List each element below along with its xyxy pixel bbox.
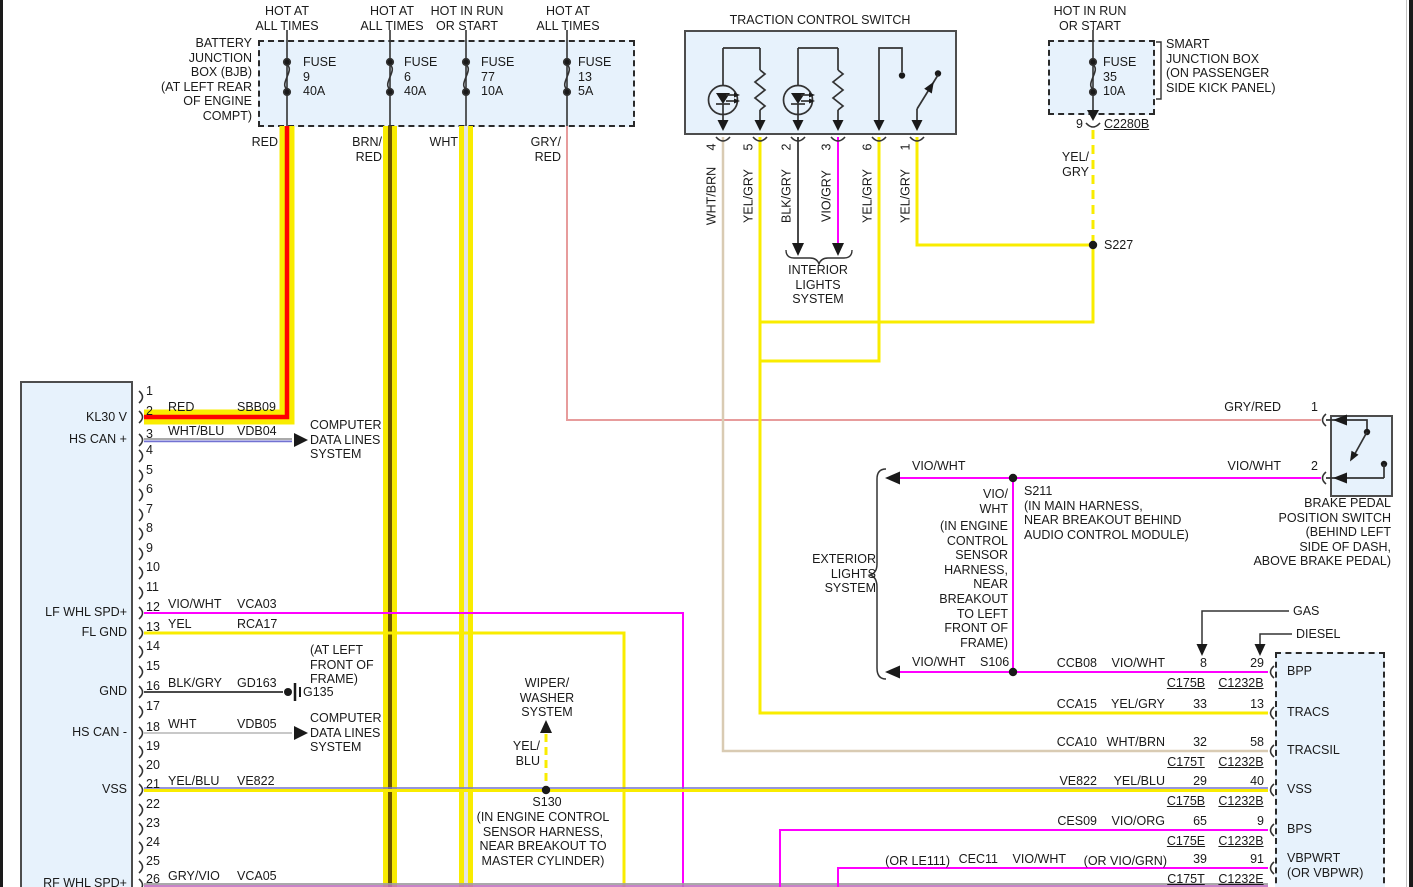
row4-circuit: VE822 xyxy=(1059,774,1097,789)
left-connector-pin-number: 26 xyxy=(146,872,160,887)
conn-c2280b: C2280B xyxy=(1104,117,1149,132)
left-connector-pin-number: 4 xyxy=(146,443,153,458)
row5-circuit: CES09 xyxy=(1057,814,1097,829)
wire-yel-blu-s130-branch xyxy=(540,720,552,786)
sjb-pin-9: 9 xyxy=(1076,117,1083,132)
brake-pedal-position-switch-box xyxy=(1330,415,1393,497)
pin-bracket-left xyxy=(139,823,143,835)
pin-bracket-left xyxy=(139,804,143,816)
bpp-title: BRAKE PEDAL POSITION SWITCH (BEHIND LEFT… xyxy=(1253,496,1391,569)
w12-color: VIO/WHT xyxy=(168,597,221,612)
row4-conn-gas: C175B xyxy=(1167,794,1205,809)
row6-alt-circuit: (OR LE111) xyxy=(885,854,950,869)
pin-bracket-c2280b xyxy=(1086,123,1100,127)
row5-diesel-pin: 9 xyxy=(1257,814,1264,829)
row6-diesel-pin: 91 xyxy=(1250,852,1264,867)
row1-conn-gas: C175B xyxy=(1167,676,1205,691)
feed-label-4: HOT AT ALL TIMES xyxy=(536,4,599,33)
row6-color: VIO/WHT xyxy=(1013,852,1066,867)
row3-circuit: CCA10 xyxy=(1057,735,1097,750)
computer-data-lines-1: COMPUTER DATA LINES SYSTEM xyxy=(310,418,382,462)
row4-color: YEL/BLU xyxy=(1114,774,1165,789)
pin-bracket-tcs xyxy=(831,137,845,141)
left-connector-pin-number: 22 xyxy=(146,797,160,812)
fuse-9-label: FUSE 9 40A xyxy=(303,55,336,99)
row2-diesel-pin: 13 xyxy=(1250,697,1264,712)
pin-bracket-left xyxy=(139,567,143,579)
pin-bracket-left xyxy=(139,450,143,462)
row4-diesel-pin: 40 xyxy=(1250,774,1264,789)
pin-bracket-tcs xyxy=(716,137,730,141)
row6-alt-color: (OR VIO/GRN) xyxy=(1084,854,1167,869)
wire-gry-red xyxy=(567,126,1321,420)
tcs-wire-4: WHT/BRN xyxy=(705,167,720,225)
left-connector-pin-number: 24 xyxy=(146,835,160,850)
left-connector-pin-number: 9 xyxy=(146,541,153,556)
pcm-pin-tracs: TRACS xyxy=(1287,705,1329,720)
computer-data-lines-2: COMPUTER DATA LINES SYSTEM xyxy=(310,711,382,755)
wire-yelblu-label: YEL/ BLU xyxy=(513,739,540,768)
wiper-washer-system: WIPER/ WASHER SYSTEM xyxy=(520,676,574,720)
pin-bracket-left xyxy=(139,470,143,482)
left-connector-pin-number: 2 xyxy=(146,404,153,419)
w13-circuit: RCA17 xyxy=(237,617,277,632)
wire-yel-blu-ve822 xyxy=(144,788,1268,791)
pin-lfwhlspd: LF WHL SPD+ xyxy=(45,605,127,620)
left-connector-pin-number: 21 xyxy=(146,777,160,792)
pcm-pin-bps: BPS xyxy=(1287,822,1312,837)
gas-pointer xyxy=(1197,611,1290,656)
wire-brnred-label: BRN/ RED xyxy=(352,135,382,164)
row2-color: YEL/GRY xyxy=(1111,697,1165,712)
traction-control-switch-box xyxy=(684,30,957,135)
row3-conn-gas: C175T xyxy=(1167,755,1205,770)
tcs-wire-6: YEL/GRY xyxy=(861,169,876,223)
tcs-pin-1: 1 xyxy=(899,144,914,151)
w2-color: RED xyxy=(168,400,194,415)
pin-flgnd: FL GND xyxy=(82,625,127,640)
row5-conn-gas: C175E xyxy=(1167,834,1205,849)
pin-bracket-left xyxy=(139,627,143,639)
pin-bracket-left xyxy=(139,784,143,796)
tcs-wire-5: YEL/GRY xyxy=(742,169,757,223)
row5-conn-diesel: C1232B xyxy=(1218,834,1263,849)
row3-color: WHT/BRN xyxy=(1107,735,1165,750)
row6-conn-diesel: C1232E xyxy=(1218,872,1263,887)
pin-bracket-bpp xyxy=(1323,414,1327,426)
w18-color: WHT xyxy=(168,717,196,732)
left-connector-pin-number: 3 xyxy=(146,427,153,442)
tcs-pin-4: 4 xyxy=(705,144,720,151)
tcs-wire-2: BLK/GRY xyxy=(780,169,795,223)
wire-viowht-upper: VIO/WHT xyxy=(912,459,965,474)
pin-bracket-pcm xyxy=(1271,824,1275,836)
pin-bracket-left xyxy=(139,509,143,521)
interior-lights-underbrace xyxy=(786,250,852,264)
pin-bracket-left xyxy=(139,686,143,698)
pin-bracket-left xyxy=(139,391,143,403)
pcm-pin-tracsil: TRACSIL xyxy=(1287,743,1340,758)
tcs-pin-3: 3 xyxy=(820,144,835,151)
splice-s227: S227 xyxy=(1104,238,1133,253)
pcm-pin-vss: VSS xyxy=(1287,782,1312,797)
pin-bracket-left xyxy=(139,411,143,423)
row4-gas-pin: 29 xyxy=(1193,774,1207,789)
wire-wht-label: WHT xyxy=(430,135,458,150)
ground-g135: G135 xyxy=(303,685,334,700)
splice-s106: S106 xyxy=(980,655,1009,670)
left-connector-pin-number: 7 xyxy=(146,502,153,517)
w2-circuit: SBB09 xyxy=(237,400,276,415)
row6-gas-pin: 39 xyxy=(1193,852,1207,867)
tcs-pin-2: 2 xyxy=(780,144,795,151)
wire-gryred-label: GRY/ RED xyxy=(531,135,561,164)
wiring-diagram: BATTERY JUNCTION BOX (BJB) (AT LEFT REAR… xyxy=(0,0,1413,887)
bpp-pin-2: 2 xyxy=(1311,459,1318,474)
scrollbar-track-line xyxy=(1406,0,1407,887)
pin-bracket-pcm xyxy=(1271,862,1275,874)
pin-bracket-left xyxy=(139,646,143,658)
pin-rfwhlspd: RF WHL SPD+ xyxy=(43,876,127,887)
pin-bracket-pcm xyxy=(1271,666,1275,678)
pin-bracket-left xyxy=(139,765,143,777)
row3-conn-diesel: C1232B xyxy=(1218,755,1263,770)
tcs-wire-1: YEL/GRY xyxy=(899,169,914,223)
s106-location: (IN ENGINE CONTROL SENSOR HARNESS, NEAR … xyxy=(939,519,1008,650)
wire-gry-vio-vca05 xyxy=(144,884,1268,886)
wire-viowht-bpp: VIO/WHT xyxy=(1228,459,1281,474)
smart-junction-box xyxy=(1048,40,1155,115)
left-connector-pin-number: 17 xyxy=(146,699,160,714)
left-connector-pin-number: 25 xyxy=(146,854,160,869)
pin-bracket-tcs xyxy=(753,137,767,141)
w16-circuit: GD163 xyxy=(237,676,277,691)
s130-location: (IN ENGINE CONTROL SENSOR HARNESS, NEAR … xyxy=(477,810,610,868)
splice-s227-dot xyxy=(1089,241,1097,249)
feed-label-1: HOT AT ALL TIMES xyxy=(255,4,318,33)
tcs-wire-3: VIO/GRY xyxy=(820,170,835,222)
exterior-lights-system: EXTERIOR LIGHTS SYSTEM xyxy=(812,552,876,596)
splice-s130-dot xyxy=(542,786,550,794)
left-connector-pin-number: 10 xyxy=(146,560,160,575)
row4-conn-diesel: C1232B xyxy=(1218,794,1263,809)
wire-gryred-bpp: GRY/RED xyxy=(1224,400,1281,415)
bpp-pin-1: 1 xyxy=(1311,400,1318,415)
fuse-6-label: FUSE 6 40A xyxy=(404,55,437,99)
pin-bracket-left xyxy=(139,746,143,758)
splice-s211: S211 (IN MAIN HARNESS, NEAR BREAKOUT BEH… xyxy=(1024,484,1189,542)
row1-color: VIO/WHT xyxy=(1112,656,1165,671)
w21-color: YEL/BLU xyxy=(168,774,219,789)
pin-bracket-pcm xyxy=(1271,707,1275,719)
left-connector-pin-number: 5 xyxy=(146,463,153,478)
wire-viowht-lower: VIO/WHT xyxy=(912,655,965,670)
left-connector-pin-number: 11 xyxy=(146,580,159,595)
pin-vss: VSS xyxy=(102,782,127,797)
w3-color: WHT/BLU xyxy=(168,424,224,439)
pin-bracket-left xyxy=(139,706,143,718)
interior-lights-system: INTERIOR LIGHTS SYSTEM xyxy=(788,263,848,307)
wire-yel-gry-cca15 xyxy=(760,137,1268,713)
pin-gnd: GND xyxy=(99,684,127,699)
pin-bracket-pcm xyxy=(1271,745,1275,757)
w18-circuit: VDB05 xyxy=(237,717,277,732)
row1-circuit: CCB08 xyxy=(1057,656,1097,671)
pin-bracket-left xyxy=(139,489,143,501)
pcm-pin-bpp: BPP xyxy=(1287,664,1312,679)
left-connector-pin-number: 15 xyxy=(146,659,160,674)
row6-circuit: CEC11 xyxy=(959,852,998,867)
window-left-edge xyxy=(0,0,3,887)
pin-bracket-tcs xyxy=(791,137,805,141)
pin-kl30v: KL30 V xyxy=(86,410,127,425)
row5-gas-pin: 65 xyxy=(1193,814,1207,829)
row6-conn-gas: C175T xyxy=(1167,872,1205,887)
pin-bracket-left xyxy=(139,842,143,854)
tcs-pin-6: 6 xyxy=(861,144,876,151)
left-connector-pin-number: 13 xyxy=(146,620,160,635)
left-connector-pin-number: 18 xyxy=(146,720,160,735)
pin-bracket-left xyxy=(139,434,143,446)
g135-location: (AT LEFT FRONT OF FRAME) xyxy=(310,643,374,687)
left-connector-pin-number: 16 xyxy=(146,679,160,694)
left-connector-pin-number: 19 xyxy=(146,739,160,754)
bjb-title: BATTERY JUNCTION BOX (BJB) (AT LEFT REAR… xyxy=(161,36,252,124)
wire-viowht-vert: VIO/ WHT xyxy=(980,487,1008,516)
w3-circuit: VDB04 xyxy=(237,424,277,439)
pin-bracket-bpp xyxy=(1323,472,1327,484)
pin-hscan-plus: HS CAN + xyxy=(69,432,127,447)
splice-s130: S130 xyxy=(532,795,561,810)
pin-bracket-tcs xyxy=(910,137,924,141)
gas-label: GAS xyxy=(1293,604,1319,619)
left-connector-pin-number: 23 xyxy=(146,816,160,831)
tcs-pin-5: 5 xyxy=(742,144,757,151)
row2-circuit: CCA15 xyxy=(1057,697,1097,712)
left-connector-pin-number: 6 xyxy=(146,482,153,497)
pin-bracket-left xyxy=(139,727,143,739)
left-connector-pin-number: 12 xyxy=(146,600,160,615)
row3-diesel-pin: 58 xyxy=(1250,735,1264,750)
pin-bracket-tcs xyxy=(872,137,886,141)
pin-bracket-left xyxy=(139,528,143,540)
tcs-title: TRACTION CONTROL SWITCH xyxy=(730,13,911,28)
fuse-35-label: FUSE 35 10A xyxy=(1103,55,1136,99)
fuse-77-label: FUSE 77 10A xyxy=(481,55,514,99)
row5-color: VIO/ORG xyxy=(1112,814,1165,829)
w12-circuit: VCA03 xyxy=(237,597,277,612)
row3-gas-pin: 32 xyxy=(1193,735,1207,750)
wire-red-label: RED xyxy=(252,135,278,150)
w16-color: BLK/GRY xyxy=(168,676,222,691)
splice-s211-dot xyxy=(1009,474,1017,482)
left-connector-pin-number: 14 xyxy=(146,639,160,654)
row1-gas-pin: 8 xyxy=(1200,656,1207,671)
feed-label-2: HOT AT ALL TIMES xyxy=(360,4,423,33)
w21-circuit: VE822 xyxy=(237,774,275,789)
fuse-13-label: FUSE 13 5A xyxy=(578,55,611,99)
pin-hscan-minus: HS CAN - xyxy=(72,725,127,740)
pin-bracket-pcm xyxy=(1271,784,1275,796)
left-connector-pin-number: 1 xyxy=(146,384,153,399)
w26-color: GRY/VIO xyxy=(168,869,220,884)
feed-label-3: HOT IN RUN OR START xyxy=(431,4,504,33)
pin-bracket-left xyxy=(139,861,143,873)
row1-conn-diesel: C1232B xyxy=(1218,676,1263,691)
wire-yelgry-label: YEL/ GRY xyxy=(1062,150,1089,179)
wire-red-sbb09 xyxy=(144,126,287,417)
pin-bracket-left xyxy=(139,666,143,678)
pin-bracket-left xyxy=(139,548,143,560)
pin-bracket-left xyxy=(139,587,143,599)
feed-label-5: HOT IN RUN OR START xyxy=(1054,4,1127,33)
w26-circuit: VCA05 xyxy=(237,869,277,884)
pcm-pin-vbpwrt: VBPWRT (OR VBPWR) xyxy=(1287,851,1363,880)
row2-gas-pin: 33 xyxy=(1193,697,1207,712)
sjb-title: SMART JUNCTION BOX (ON PASSENGER SIDE KI… xyxy=(1166,37,1276,95)
pin-bracket-left xyxy=(139,879,143,887)
w13-color: YEL xyxy=(168,617,192,632)
window-right-edge[interactable] xyxy=(1409,0,1413,887)
left-connector-pin-number: 20 xyxy=(146,758,160,773)
splice-s106-dot xyxy=(1009,668,1017,676)
pin-bracket-left xyxy=(139,607,143,619)
left-connector-pin-number: 8 xyxy=(146,521,153,536)
diesel-label: DIESEL xyxy=(1296,627,1340,642)
row1-diesel-pin: 29 xyxy=(1250,656,1264,671)
sjb-label-bracket xyxy=(1156,42,1161,99)
